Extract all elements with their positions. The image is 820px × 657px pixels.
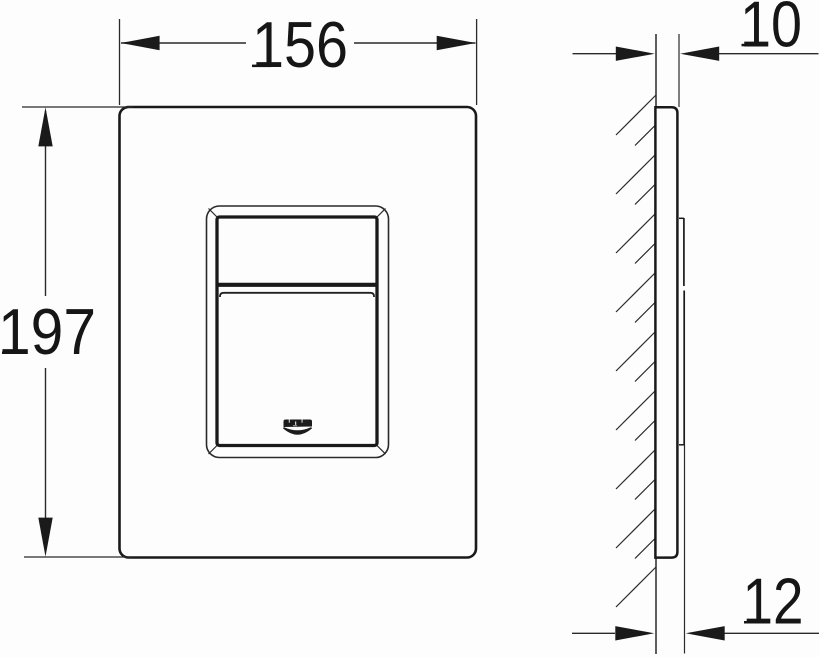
svg-text:10: 10 (740, 0, 802, 61)
svg-text:197: 197 (0, 295, 96, 368)
svg-text:156: 156 (252, 8, 348, 81)
svg-text:12: 12 (743, 565, 804, 638)
